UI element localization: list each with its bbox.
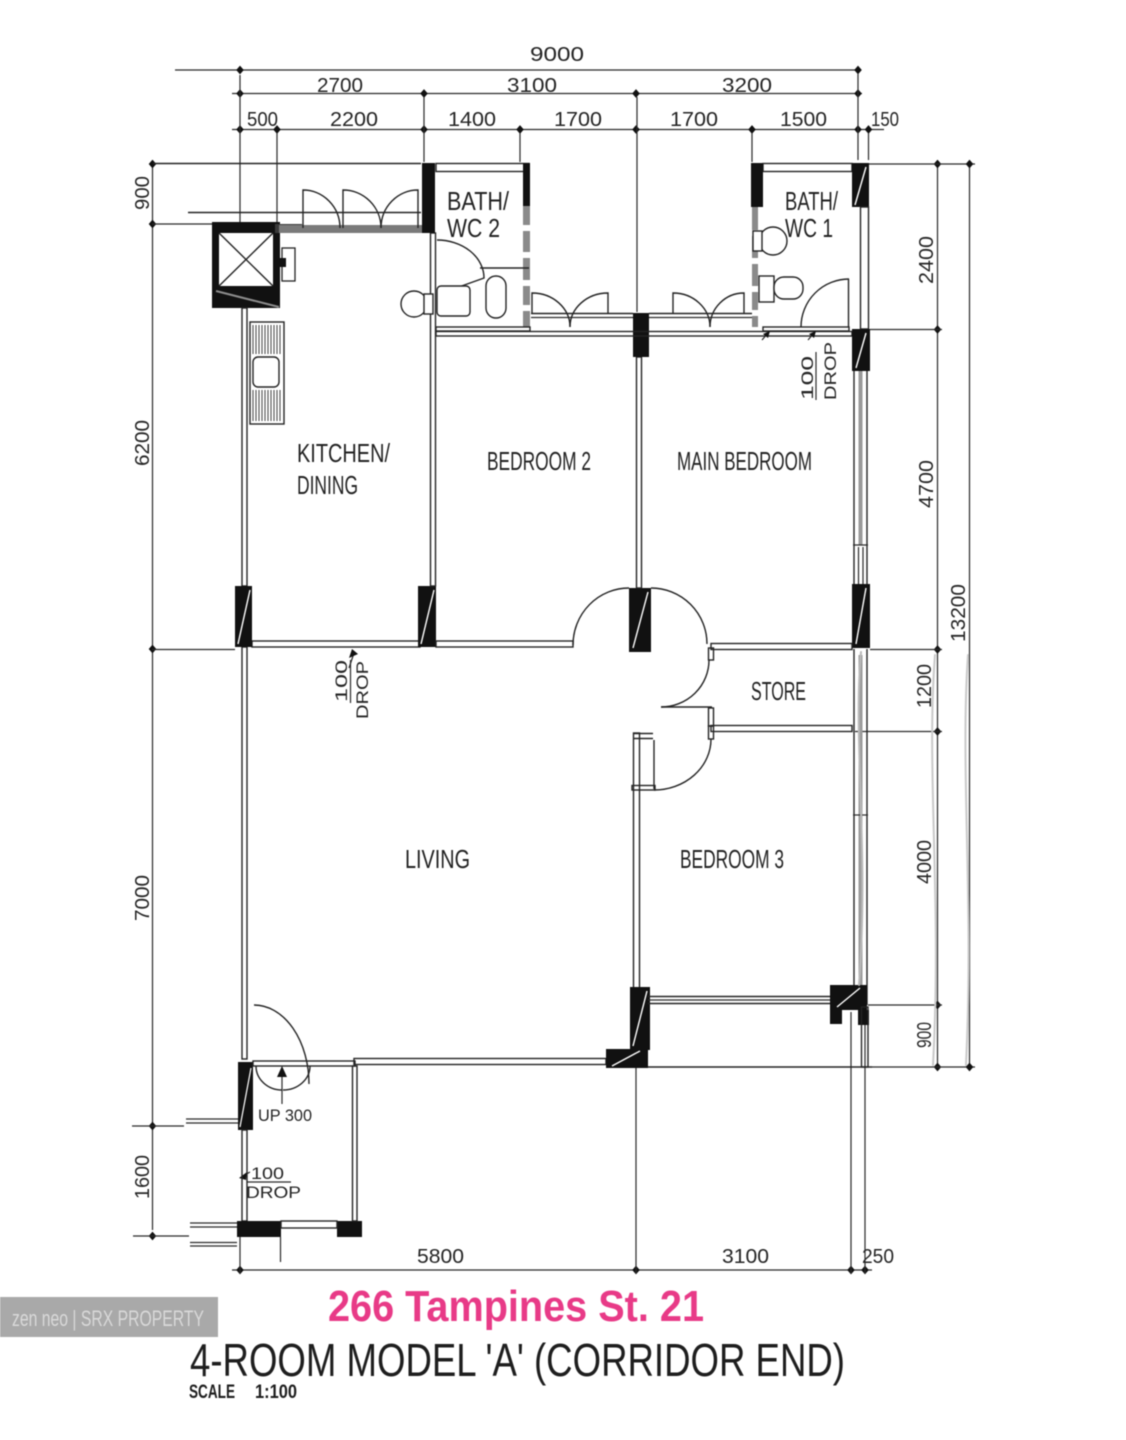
svg-text:4-ROOM MODEL 'A' (CORRIDOR END: 4-ROOM MODEL 'A' (CORRIDOR END) <box>190 1334 845 1386</box>
svg-text:3100: 3100 <box>507 75 557 97</box>
svg-text:5800: 5800 <box>417 1246 464 1268</box>
svg-text:250: 250 <box>862 1246 894 1268</box>
svg-text:1700: 1700 <box>670 109 718 131</box>
svg-text:DINING: DINING <box>297 470 358 500</box>
svg-text:BEDROOM 3: BEDROOM 3 <box>680 844 784 874</box>
svg-text:4000: 4000 <box>914 840 936 884</box>
svg-text:2200: 2200 <box>330 109 378 131</box>
svg-text:1:100: 1:100 <box>255 1382 297 1403</box>
svg-text:1500: 1500 <box>780 109 827 131</box>
svg-text:150: 150 <box>871 109 899 131</box>
svg-text:LIVING: LIVING <box>405 844 470 874</box>
svg-text:100: 100 <box>332 660 351 702</box>
svg-text:MAIN BEDROOM: MAIN BEDROOM <box>677 446 812 476</box>
svg-text:SCALE: SCALE <box>189 1382 235 1403</box>
svg-text:13200: 13200 <box>948 584 970 642</box>
svg-text:DROP: DROP <box>353 661 372 719</box>
svg-text:3200: 3200 <box>722 75 772 97</box>
svg-text:1700: 1700 <box>554 109 602 131</box>
svg-text:7000: 7000 <box>132 875 154 921</box>
svg-text:WC 2: WC 2 <box>447 213 500 243</box>
svg-text:BATH/: BATH/ <box>447 186 510 216</box>
svg-text:3100: 3100 <box>722 1246 769 1268</box>
svg-text:BATH/: BATH/ <box>785 186 839 216</box>
svg-text:KITCHEN/: KITCHEN/ <box>297 438 391 468</box>
svg-text:266 Tampines St. 21: 266 Tampines St. 21 <box>328 1282 704 1331</box>
svg-text:900: 900 <box>132 176 154 210</box>
svg-text:6200: 6200 <box>132 420 154 466</box>
svg-text:500: 500 <box>247 109 278 131</box>
svg-text:STORE: STORE <box>751 676 806 706</box>
svg-text:WC 1: WC 1 <box>785 213 833 243</box>
svg-text:DROP: DROP <box>821 342 840 400</box>
svg-text:100: 100 <box>798 356 817 400</box>
svg-text:1600: 1600 <box>132 1155 154 1199</box>
svg-text:4700: 4700 <box>916 460 938 508</box>
svg-text:2400: 2400 <box>916 236 938 284</box>
svg-text:100: 100 <box>251 1164 284 1183</box>
svg-text:2700: 2700 <box>317 75 363 97</box>
svg-text:BEDROOM 2: BEDROOM 2 <box>487 446 591 476</box>
svg-text:zen neo | SRX PROPERTY: zen neo | SRX PROPERTY <box>12 1306 204 1331</box>
svg-text:900: 900 <box>914 1022 936 1048</box>
svg-text:UP 300: UP 300 <box>258 1106 312 1125</box>
svg-text:DROP: DROP <box>246 1183 301 1202</box>
svg-text:9000: 9000 <box>530 44 584 66</box>
svg-text:1400: 1400 <box>448 109 496 131</box>
